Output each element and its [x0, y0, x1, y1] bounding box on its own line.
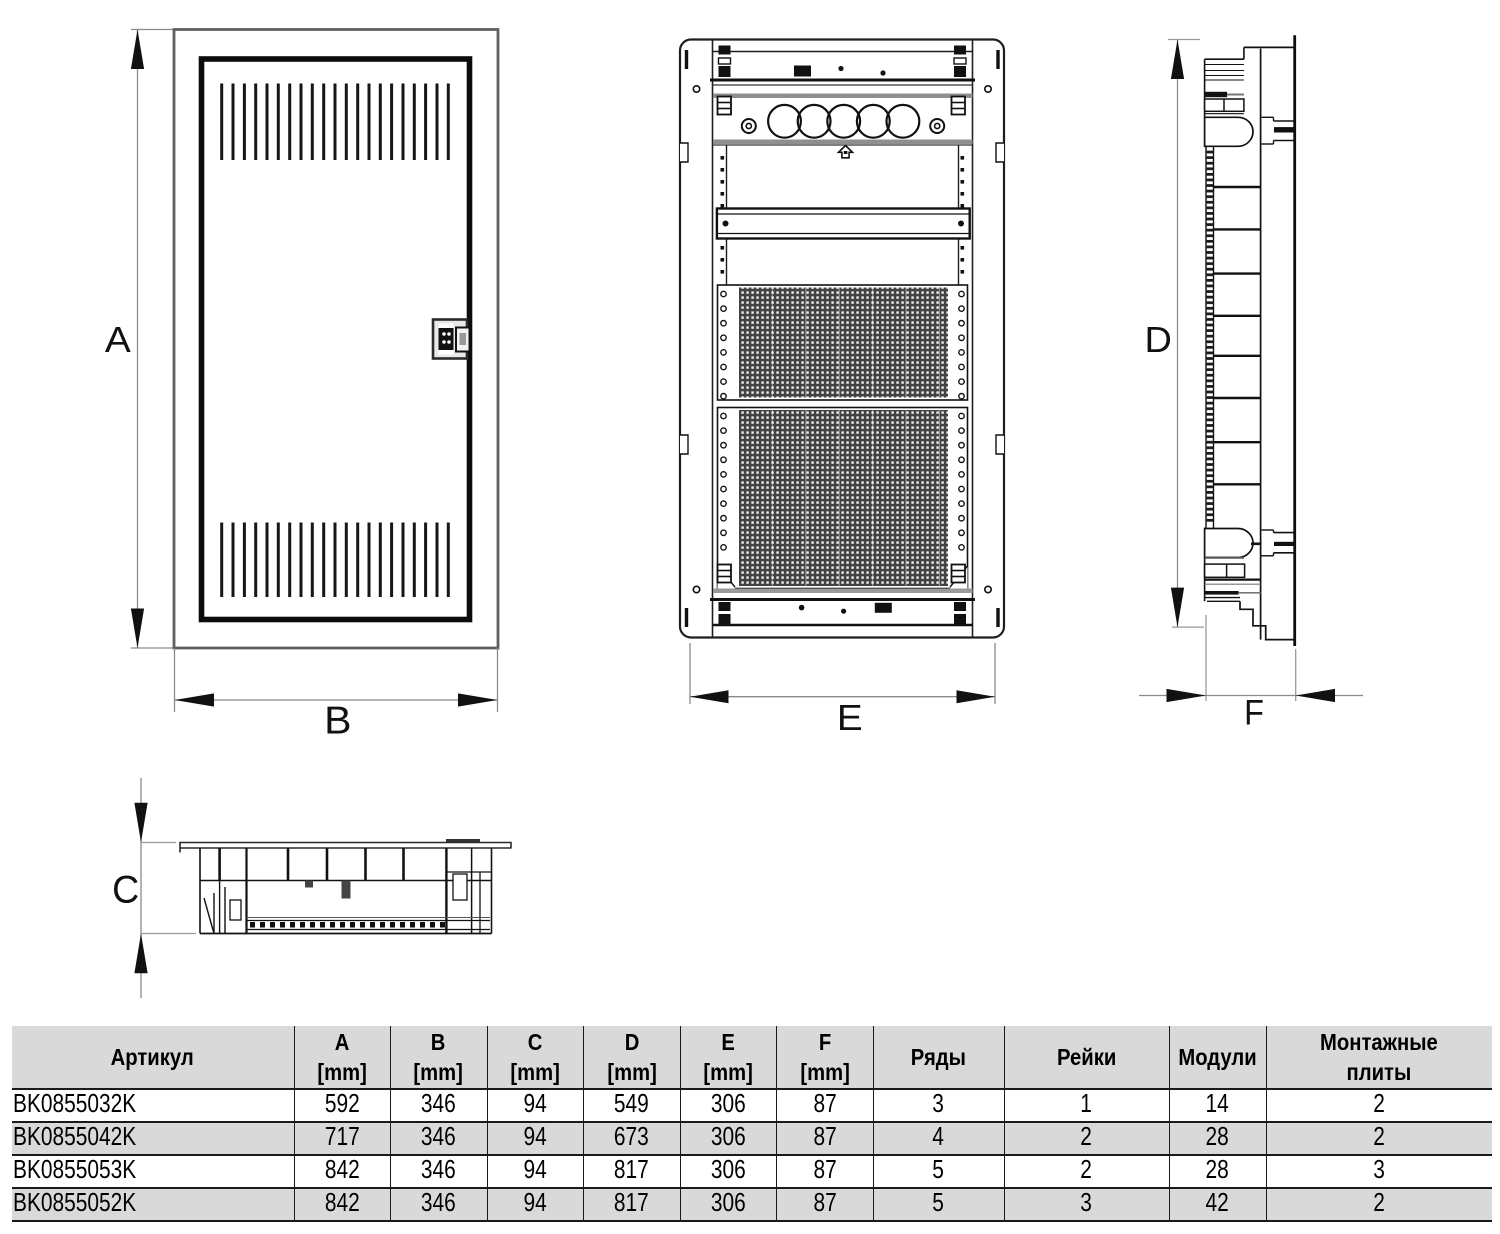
svg-text:C: C: [112, 869, 139, 912]
svg-text:F: F: [1244, 693, 1264, 733]
svg-text:A: A: [105, 319, 132, 360]
svg-text:E: E: [837, 697, 863, 738]
svg-text:D: D: [1145, 319, 1172, 360]
svg-text:B: B: [324, 700, 351, 743]
